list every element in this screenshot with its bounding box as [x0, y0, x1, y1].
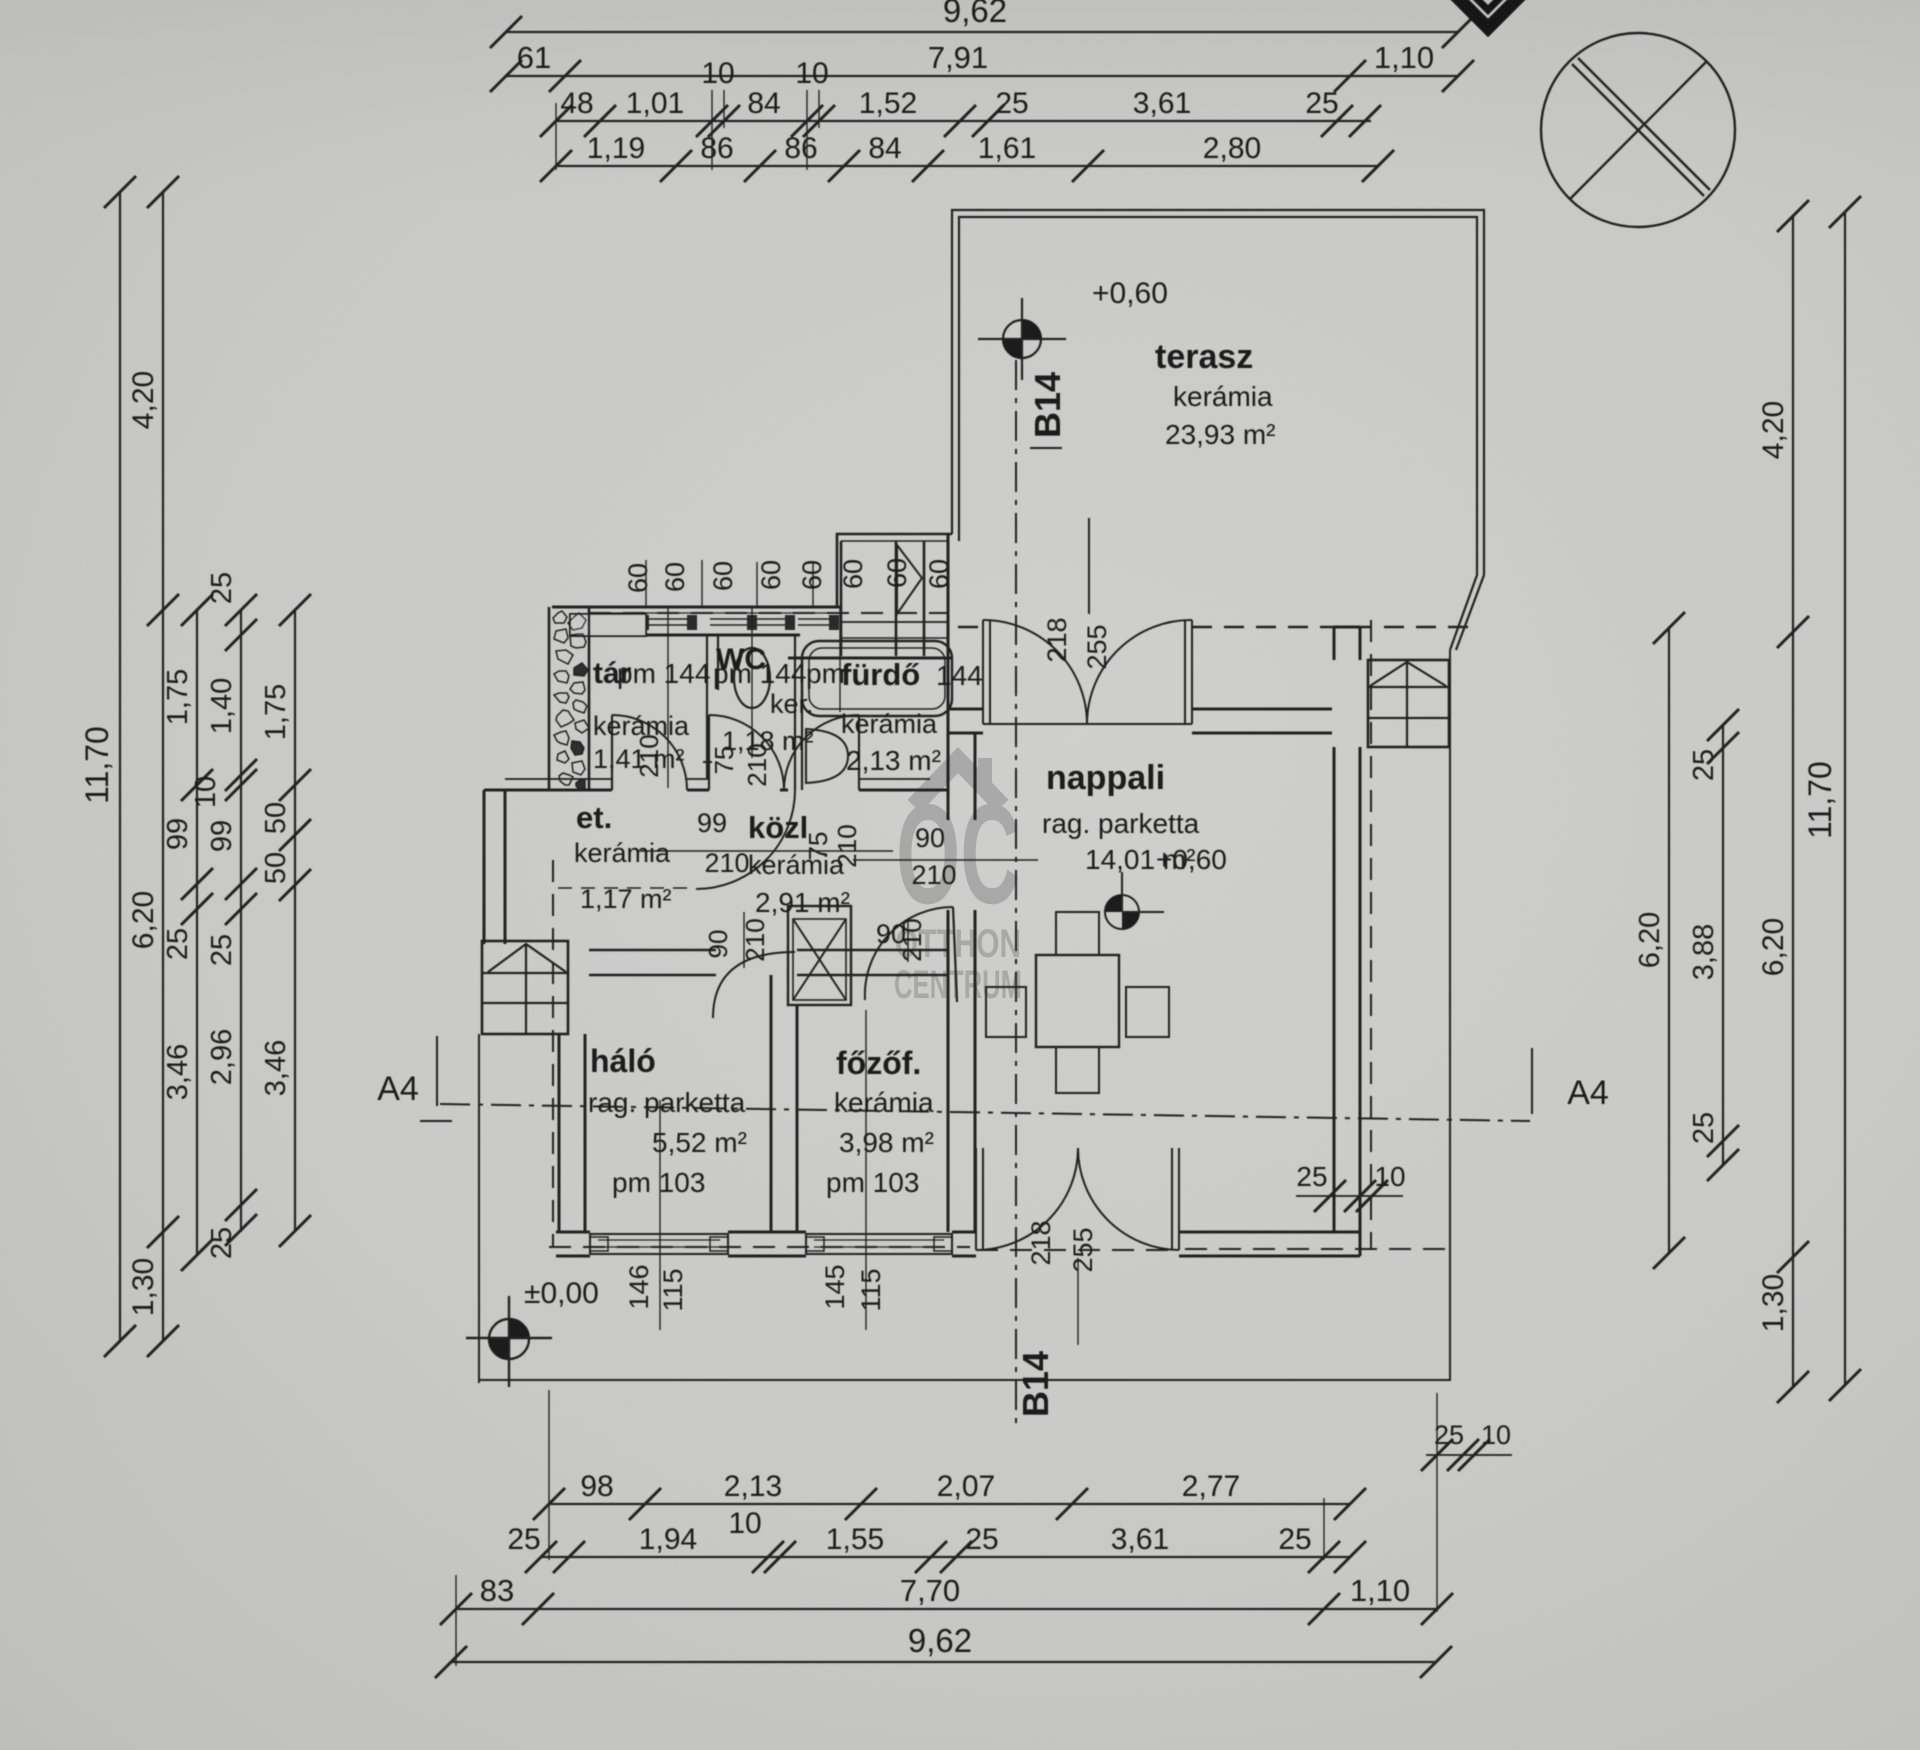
svg-text:1,75: 1,75: [260, 684, 292, 740]
svg-text:2,80: 2,80: [1203, 132, 1261, 165]
svg-text:25: 25: [965, 1523, 998, 1556]
svg-text:1,40: 1,40: [206, 678, 238, 734]
svg-text:pm 144: pm 144: [713, 658, 806, 689]
svg-text:10: 10: [1374, 1161, 1405, 1192]
svg-text:1,10: 1,10: [1350, 1573, 1410, 1608]
svg-text:146: 146: [624, 1264, 654, 1309]
svg-text:közl: közl: [748, 810, 808, 845]
svg-text:ker.: ker.: [770, 689, 814, 719]
svg-text:75: 75: [709, 746, 739, 775]
svg-text:48: 48: [560, 87, 593, 120]
svg-text:115: 115: [856, 1268, 886, 1311]
svg-text:218: 218: [1042, 617, 1072, 662]
svg-text:pm 144: pm 144: [617, 658, 710, 689]
svg-text:1,75: 1,75: [162, 669, 194, 725]
svg-text:2,96: 2,96: [206, 1029, 238, 1085]
svg-text:3,88: 3,88: [1688, 924, 1720, 980]
svg-text:1,94: 1,94: [639, 1523, 697, 1556]
svg-text:60: 60: [756, 560, 786, 590]
svg-text:25: 25: [1434, 1420, 1464, 1450]
svg-text:25: 25: [162, 928, 194, 960]
svg-text:2,13 m²: 2,13 m²: [846, 745, 941, 776]
svg-text:6,20: 6,20: [1634, 912, 1666, 968]
svg-text:+0,60: +0,60: [1092, 277, 1168, 310]
svg-text:10: 10: [701, 57, 734, 90]
svg-text:10: 10: [190, 776, 222, 808]
svg-text:6,20: 6,20: [127, 891, 160, 949]
svg-text:84: 84: [747, 87, 780, 120]
svg-text:50: 50: [260, 852, 292, 884]
svg-text:144: 144: [936, 660, 983, 691]
svg-text:210: 210: [742, 743, 772, 786]
svg-text:115: 115: [658, 1268, 688, 1311]
svg-text:25: 25: [995, 87, 1028, 120]
svg-text:99: 99: [162, 818, 194, 850]
svg-text:7,70: 7,70: [900, 1573, 960, 1608]
svg-text:86: 86: [784, 132, 817, 165]
svg-text:99: 99: [206, 820, 238, 852]
svg-text:3,46: 3,46: [162, 1044, 194, 1100]
svg-text:25: 25: [206, 572, 238, 604]
svg-text:pm 103: pm 103: [826, 1167, 919, 1198]
svg-text:3,98 m²: 3,98 m²: [839, 1127, 934, 1158]
svg-text:210: 210: [897, 918, 927, 961]
svg-text:90: 90: [915, 823, 945, 853]
svg-text:50: 50: [260, 802, 292, 834]
svg-text:et.: et.: [576, 800, 612, 835]
svg-text:7,91: 7,91: [928, 40, 988, 75]
svg-text:23,93 m²: 23,93 m²: [1165, 419, 1276, 450]
svg-text:25: 25: [1305, 87, 1338, 120]
svg-text:210: 210: [704, 848, 749, 878]
svg-text:60: 60: [708, 561, 738, 591]
svg-text:99: 99: [697, 808, 727, 838]
svg-text:+0,60: +0,60: [1156, 844, 1227, 875]
svg-text:kerámia: kerámia: [841, 709, 938, 739]
svg-text:1,10: 1,10: [1374, 40, 1434, 75]
svg-text:11,70: 11,70: [1802, 761, 1838, 839]
svg-text:25: 25: [1278, 1523, 1311, 1556]
svg-text:61: 61: [517, 40, 551, 75]
svg-text:1,01: 1,01: [626, 87, 684, 120]
svg-text:60: 60: [882, 558, 912, 588]
svg-text:1,52: 1,52: [859, 87, 917, 120]
svg-text:25: 25: [1688, 1112, 1720, 1144]
svg-text:3,46: 3,46: [260, 1040, 292, 1096]
svg-text:25: 25: [1296, 1161, 1327, 1192]
svg-text:60: 60: [623, 563, 653, 593]
svg-text:pm 103: pm 103: [612, 1167, 705, 1198]
svg-text:fürdő: fürdő: [841, 657, 920, 692]
svg-text:255: 255: [1068, 1227, 1098, 1272]
svg-text:3,61: 3,61: [1111, 1523, 1169, 1556]
svg-text:pm: pm: [806, 658, 845, 689]
svg-text:25: 25: [206, 1227, 238, 1259]
svg-text:2,91 m²: 2,91 m²: [755, 887, 850, 918]
svg-text:25: 25: [507, 1523, 540, 1556]
svg-text:nappali: nappali: [1046, 759, 1165, 797]
svg-text:B14: B14: [1027, 372, 1068, 438]
svg-text:terasz: terasz: [1155, 338, 1253, 376]
svg-text:1,19: 1,19: [587, 132, 645, 165]
svg-text:10: 10: [1481, 1420, 1511, 1450]
svg-text:kerámia: kerámia: [574, 838, 671, 868]
svg-text:9,62: 9,62: [943, 0, 1007, 29]
svg-text:5,52 m²: 5,52 m²: [652, 1127, 747, 1158]
svg-text:10: 10: [795, 57, 828, 90]
svg-text:86: 86: [700, 132, 733, 165]
svg-text:84: 84: [868, 132, 901, 165]
svg-text:1,30: 1,30: [1757, 1274, 1790, 1332]
svg-text:60: 60: [838, 559, 868, 589]
svg-text:3,61: 3,61: [1133, 87, 1191, 120]
svg-text:±0,00: ±0,00: [524, 1277, 599, 1310]
svg-text:255: 255: [1082, 624, 1112, 669]
svg-text:25: 25: [206, 934, 238, 966]
svg-text:60: 60: [660, 562, 690, 592]
svg-text:B14: B14: [1015, 1351, 1056, 1417]
svg-text:1,55: 1,55: [826, 1523, 884, 1556]
svg-text:OC: OC: [896, 775, 1020, 934]
svg-text:A4: A4: [1567, 1074, 1609, 1112]
svg-text:4,20: 4,20: [127, 371, 160, 429]
svg-text:6,20: 6,20: [1757, 918, 1790, 976]
svg-text:2,07: 2,07: [937, 1470, 995, 1503]
svg-text:90: 90: [703, 930, 733, 959]
svg-text:60: 60: [797, 560, 827, 590]
svg-text:kerámia: kerámia: [834, 1087, 934, 1118]
svg-text:rag. parketta: rag. parketta: [1042, 808, 1200, 839]
svg-text:kerámia: kerámia: [748, 850, 845, 880]
svg-text:2,77: 2,77: [1182, 1470, 1240, 1503]
svg-text:A4: A4: [377, 1070, 419, 1108]
svg-text:rag. parketta: rag. parketta: [588, 1087, 746, 1118]
svg-text:25: 25: [1688, 749, 1720, 781]
svg-text:210: 210: [634, 734, 664, 777]
svg-text:218: 218: [1026, 1220, 1056, 1265]
svg-text:60: 60: [924, 559, 954, 589]
svg-text:10: 10: [728, 1507, 761, 1540]
svg-text:háló: háló: [590, 1043, 656, 1079]
svg-text:210: 210: [911, 860, 956, 890]
svg-text:kerámia: kerámia: [1173, 381, 1273, 412]
svg-text:83: 83: [480, 1573, 514, 1608]
svg-text:11,70: 11,70: [79, 726, 115, 804]
svg-text:9,62: 9,62: [908, 1622, 972, 1659]
svg-text:98: 98: [580, 1470, 613, 1503]
svg-text:főzőf.: főzőf.: [836, 1045, 921, 1081]
svg-text:210: 210: [740, 918, 770, 961]
svg-text:4,20: 4,20: [1757, 401, 1790, 459]
svg-text:1,61: 1,61: [978, 132, 1036, 165]
svg-text:145: 145: [820, 1264, 850, 1309]
svg-text:2,13: 2,13: [724, 1470, 782, 1503]
svg-text:1,30: 1,30: [127, 1258, 160, 1316]
